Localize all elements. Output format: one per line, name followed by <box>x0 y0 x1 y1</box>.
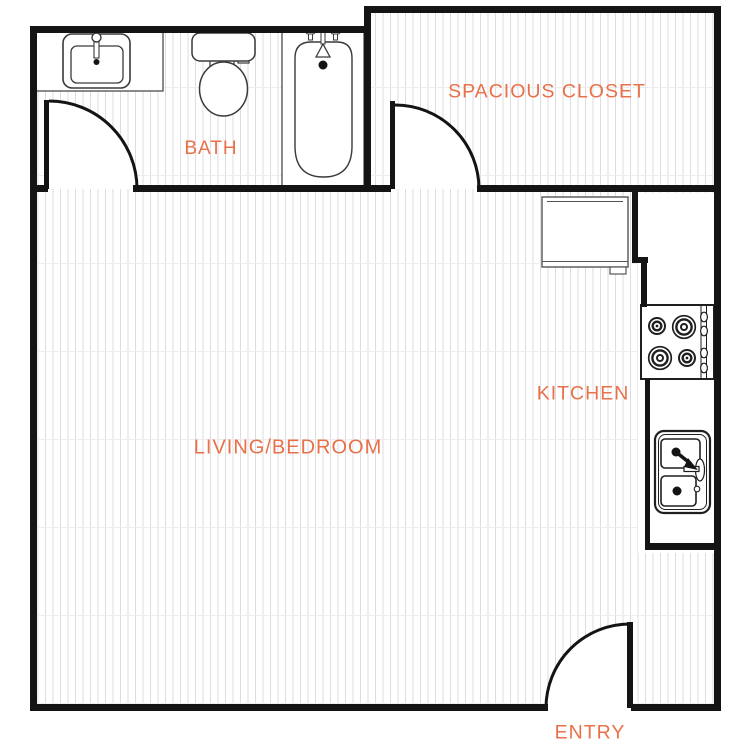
kitchen-sink-icon <box>655 431 710 513</box>
closet-door-leaf <box>390 101 395 189</box>
bathroom-sink-icon <box>63 33 130 88</box>
entry-door-leaf <box>627 622 633 708</box>
room-label-kitchen: KITCHEN <box>537 383 630 406</box>
bath-door-leaf <box>44 100 49 189</box>
room-label-spacious-closet: SPACIOUS CLOSET <box>448 81 646 104</box>
bathtub-icon <box>282 29 364 188</box>
floor-plan: BATH SPACIOUS CLOSET LIVING/BEDROOM KITC… <box>0 0 750 750</box>
room-label-entry: ENTRY <box>555 722 626 745</box>
room-label-bath: BATH <box>184 138 237 160</box>
floor-hatching <box>37 13 714 704</box>
refrigerator-icon <box>542 197 628 274</box>
stove-icon <box>641 305 714 379</box>
room-label-living-bedroom: LIVING/BEDROOM <box>194 437 382 460</box>
floor-plan-drawing <box>0 0 750 750</box>
